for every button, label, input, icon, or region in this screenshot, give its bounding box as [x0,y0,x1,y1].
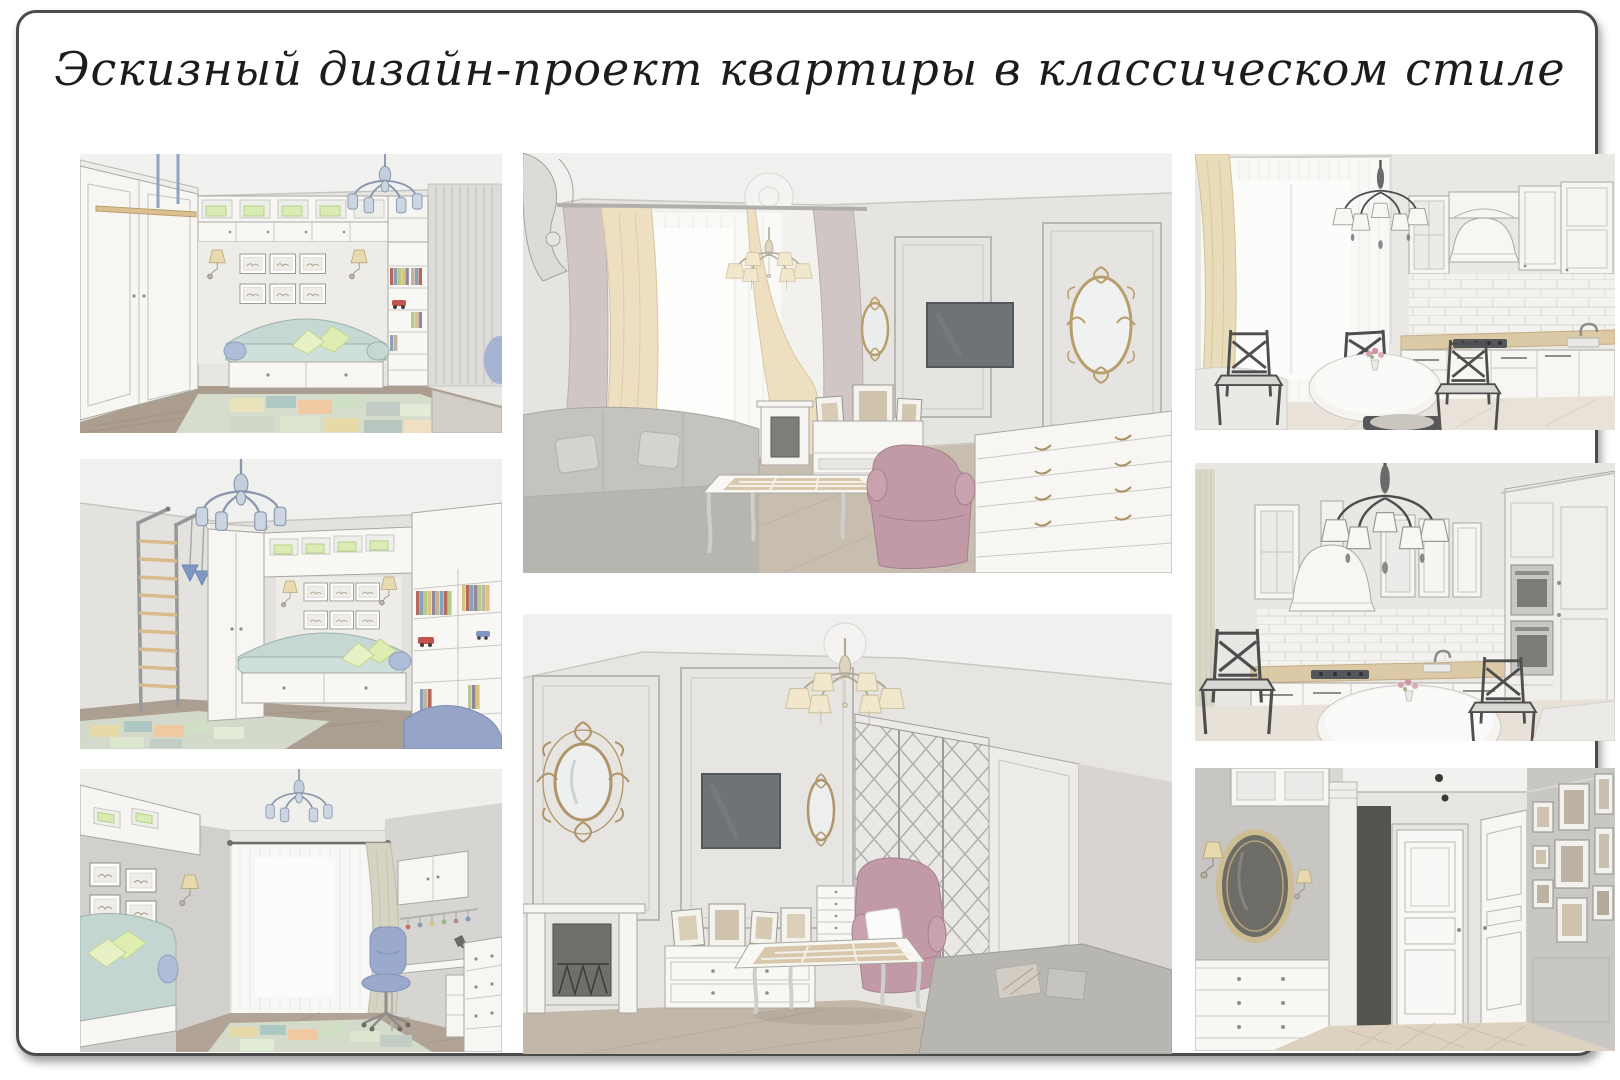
daybed [80,913,178,1047]
wardrobe [80,160,198,420]
ceiling-spot-icon [1435,774,1443,782]
white-door-angled [1481,810,1527,1030]
armchair [852,858,946,993]
fireplace [523,904,645,1013]
white-door [1392,824,1468,1030]
pilaster [1329,782,1357,1051]
subway-backsplash [1409,274,1615,336]
ceiling [1343,768,1527,792]
toy-car [392,300,406,306]
page-title: Эскизный дизайн-проект квартиры в класси… [0,42,1620,96]
tv [927,303,1013,367]
render-kids-room-ladder-view [80,459,502,749]
oval-mirror [1219,832,1291,940]
vase [1405,691,1413,701]
tv [702,774,780,848]
sofa [919,944,1172,1054]
chair-partial [1363,414,1441,430]
render-kids-room-window-desk-view [80,769,502,1052]
render-hallway-view [1195,768,1615,1051]
chest-of-drawers [464,937,502,1052]
render-kids-room-daybed-wall [80,154,502,433]
sink [1423,664,1451,672]
vase [1371,360,1379,370]
subway-backsplash [1257,609,1505,667]
chest-of-drawers [975,411,1172,573]
bookshelf [388,242,428,386]
sink [1567,338,1599,347]
render-kitchen-corner-view [1195,463,1615,741]
render-living-room-window-view [523,153,1172,573]
ceiling-spot-icon [1442,795,1449,802]
wall-cabinet [398,851,468,905]
render-kitchen-dining-window-view [1195,154,1615,430]
fireplace [757,401,813,465]
overhead-cabinets [198,196,428,242]
render-living-room-fireplace-view [523,614,1172,1054]
toy-car [418,637,434,644]
striped-pillow [995,963,1041,999]
dark-doorway [1357,806,1391,1028]
upper-cabinet [1231,768,1329,806]
